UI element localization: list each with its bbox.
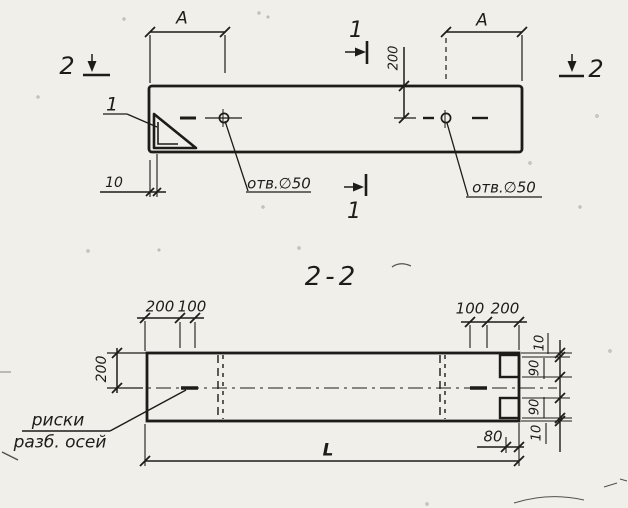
section-mark-2-left	[83, 54, 110, 75]
dim-a-right-lines	[441, 27, 527, 81]
dim-label-tr-200: 200	[491, 302, 520, 317]
detail-callout-label: 1	[106, 96, 118, 115]
dim-label-200-top: 200	[388, 46, 401, 71]
beam-outline	[149, 86, 522, 152]
section-label-2-right: 2	[588, 57, 603, 81]
dim-label-80: 80	[483, 430, 502, 445]
section-mark-2-right	[559, 54, 584, 76]
section-label-1-top: 1	[349, 20, 363, 42]
dim-label-tl-100: 100	[178, 300, 207, 315]
section-label-2-left: 2	[59, 54, 74, 78]
dim-label-10: 10	[105, 176, 123, 190]
dim-side-200-lines	[107, 348, 147, 393]
dim-label-chain-10-bottom: 10	[531, 425, 544, 442]
dim-label-side-200: 200	[95, 356, 109, 383]
section-title: 2-2	[305, 264, 359, 290]
notch-top	[500, 355, 519, 377]
dims-top-left-lines	[137, 313, 204, 351]
dim-label-tl-200: 200	[146, 300, 175, 315]
dims-top-right-lines	[461, 317, 527, 350]
dim-label-chain-90-top: 90	[529, 360, 542, 377]
dim-label-tr-100: 100	[456, 302, 485, 317]
hole-note-right-label: отв.∅50	[472, 181, 536, 196]
dim-label-chain-10-top: 10	[534, 335, 547, 352]
section-mark-1-bottom	[344, 174, 366, 196]
top-view-linework	[83, 27, 584, 197]
dim-label-a-left: A	[176, 11, 188, 28]
section-label-1-bottom: 1	[347, 201, 361, 223]
note-label-line1: риски	[32, 413, 85, 430]
dim-label-chain-90-bottom: 90	[529, 399, 542, 416]
hole-right	[441, 113, 450, 122]
dim-a-left-lines	[145, 27, 230, 83]
notch-bottom	[500, 398, 519, 418]
dim-label-length: L	[323, 443, 334, 460]
section-mark-1-top	[345, 41, 367, 64]
dim-label-a-right: A	[476, 13, 488, 30]
hole-note-left-label: отв.∅50	[247, 177, 311, 192]
note-label-line2: разб. осей	[14, 435, 107, 452]
section-outline	[147, 353, 519, 421]
drawing-sheet: A A 1 1 2 2 200 1 10 отв.∅50 отв.∅50 2-2…	[0, 0, 628, 508]
